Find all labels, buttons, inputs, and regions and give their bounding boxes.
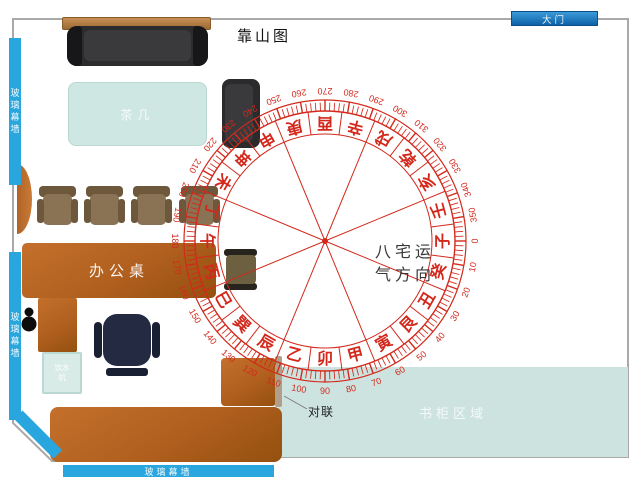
backing-hill-label: 靠山图 [237,25,291,46]
meeting-chair-2 [84,186,125,228]
desk-return [38,298,77,352]
guest-chair-right-arm-bottom [224,283,257,290]
office-chair-front-bar [106,368,148,376]
compass-center-label-line1: 八宅运 [375,241,435,264]
meeting-chair-1 [37,186,78,228]
glass-wall-left-bottom: 玻璃幕墙 [9,252,21,420]
sofa-cushion [84,30,191,61]
guest-chair-top [222,79,260,148]
tea-table: 茶几 [68,82,207,146]
guest-chair-right-seat [226,255,256,284]
glass-wall-bottom: 玻璃幕墙 [63,465,274,477]
glass-wall-left-top: 玻璃幕墙 [9,38,21,185]
office-chair-arm-right [152,322,160,358]
main-door-label: 大门 [542,12,567,26]
glass-wall-bottom-label: 玻璃幕墙 [144,465,192,478]
office-fengshui-floorplan: 书柜区域 茶几 办公桌 饮水 机 [0,0,643,500]
meeting-chair-4 [179,186,220,228]
sofa-arm-right [193,26,208,66]
compass-center-label-line2: 气方向 [375,264,435,287]
couplet-label: 对联 [308,403,334,420]
main-door: 大门 [511,11,598,26]
office-desk-label: 办公桌 [89,260,149,281]
credenza [50,407,282,462]
glass-wall-left-top-label: 玻璃幕墙 [9,88,22,136]
water-dispenser: 饮水 机 [42,352,82,394]
bookcase-area-label: 书柜区域 [419,403,487,422]
compass-center-label: 八宅运 气方向 [375,241,435,287]
glass-wall-left-bottom-label: 玻璃幕墙 [9,312,22,360]
office-chair [94,314,160,376]
guest-chair-right [222,249,259,290]
sofa-arm-left [67,26,82,66]
side-cabinet-bottom [221,358,276,406]
meeting-chair-3 [131,186,172,228]
office-chair-arm-left [94,322,102,358]
couplet-strip [275,356,282,407]
sofa [67,26,208,66]
guest-chair-top-seat [225,84,253,142]
office-desk: 办公桌 [22,243,216,298]
water-dispenser-label-line2: 机 [55,373,70,383]
office-chair-seat [103,314,151,366]
tea-table-label: 茶几 [120,106,154,123]
water-dispenser-label-line1: 饮水 [55,363,70,373]
